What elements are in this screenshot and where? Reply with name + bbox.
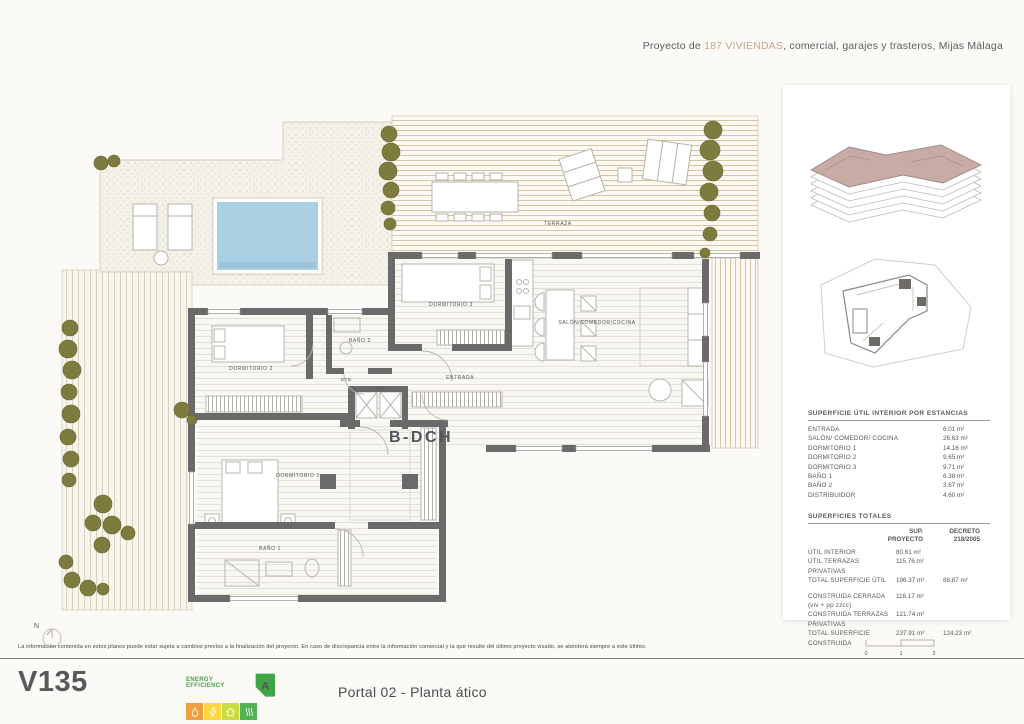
col-decreto: DECRETO 218/2005 (933, 528, 990, 544)
scale-0: 0 (864, 651, 867, 657)
energy-rating-letter: A (262, 681, 270, 693)
site-plan-sketch (813, 253, 978, 371)
table-row: BAÑO 23.67 m² (808, 481, 990, 490)
estancias-table: SUPERFICIE ÚTIL INTERIOR POR ESTANCIAS E… (808, 410, 990, 500)
footer-divider (0, 658, 1024, 659)
totales-column-headers: SUP. PROYECTO DECRETO 218/2005 (808, 528, 990, 544)
energy-efficiency-badge: ENERGY EFFICIENCY A (186, 671, 278, 720)
label-bano2: BAÑO 2 (349, 337, 371, 344)
scale-2: 2 (932, 651, 935, 657)
table-row: DISTRIBUIDOR4.60 m² (808, 491, 990, 500)
heating-icon (240, 703, 257, 720)
energy-title: ENERGY EFFICIENCY (186, 677, 250, 689)
label-entrada: ENTRADA (446, 375, 474, 381)
table-row: DORMITORIO 29.65 m² (808, 453, 990, 462)
totales-table: SUPERFICIES TOTALES SUP. PROYECTO DECRET… (808, 513, 990, 648)
label-salon: SALÓN/COMEDOR/COCINA (558, 319, 635, 326)
table-row: ÚTIL TERRAZAS PRIVATIVAS115.76 m² (808, 557, 990, 576)
totales-title: SUPERFICIES TOTALES (808, 513, 990, 524)
label-dormitorio2: DORMITORIO 2 (229, 366, 273, 372)
side-deck (712, 258, 758, 448)
table-row: ENTRADA6.01 m² (808, 425, 990, 434)
water-icon (186, 703, 203, 720)
table-row: TOTAL SUPERFICIE ÚTIL196.37 m²88.87 m² (808, 576, 990, 585)
project-title: Proyecto de 187 VIVIENDAS, comercial, ga… (643, 40, 1003, 52)
table-row: DORMITORIO 39.71 m² (808, 463, 990, 472)
project-title-suffix: , comercial, garajes y trasteros, Mijas … (783, 40, 1003, 52)
project-title-highlight: 187 VIVIENDAS (704, 40, 783, 52)
label-terraza: TERRAZA (544, 221, 572, 227)
label-core: CORE (370, 386, 385, 391)
table-row: CONSTRUIDA CERRADA (viv + pp zzcc)116.17… (808, 592, 990, 611)
floor-plan: TERRAZA DORMITORIO 3 BAÑO 2 DORMITORIO 2… (55, 110, 765, 620)
unit-label: B-DCH (389, 429, 453, 446)
label-dormitorio1: DORMITORIO 1 (276, 473, 320, 479)
garden-area (62, 270, 192, 610)
label-dormitorio3: DORMITORIO 3 (429, 302, 473, 308)
project-title-prefix: Proyecto de (643, 40, 704, 52)
estancias-title: SUPERFICIE ÚTIL INTERIOR POR ESTANCIAS (808, 410, 990, 421)
page-caption: Portal 02 - Planta ático (338, 684, 487, 700)
electricity-icon (204, 703, 221, 720)
label-dtb: DTB. (341, 377, 353, 382)
table-row: ÚTIL INTERIOR80.61 m² (808, 548, 990, 557)
energy-rating-arrow: A (253, 671, 278, 701)
disclaimer-text: La información contenida en estos planos… (18, 644, 647, 650)
house-icon (222, 703, 239, 720)
table-row: CONSTRUIDA TERRAZAS PRIVATIVAS121.74 m² (808, 610, 990, 629)
info-card: SUPERFICIE ÚTIL INTERIOR POR ESTANCIAS E… (783, 85, 1010, 620)
brand-logo: V135 (18, 666, 88, 699)
label-bano1: BAÑO 1 (259, 545, 281, 552)
table-row: SALÓN/ COMEDOR/ COCINA26.63 m² (808, 434, 990, 443)
pool (213, 198, 322, 274)
scale-bar: 0 1 2 (856, 634, 946, 658)
table-row: DORMITORIO 114.16 m² (808, 444, 990, 453)
col-sup-proyecto: SUP. PROYECTO (876, 528, 933, 544)
compass-letter: N (34, 623, 39, 630)
building-3d-render (791, 130, 1001, 248)
table-row: BAÑO 16.38 m² (808, 472, 990, 481)
scale-1: 1 (899, 651, 902, 657)
